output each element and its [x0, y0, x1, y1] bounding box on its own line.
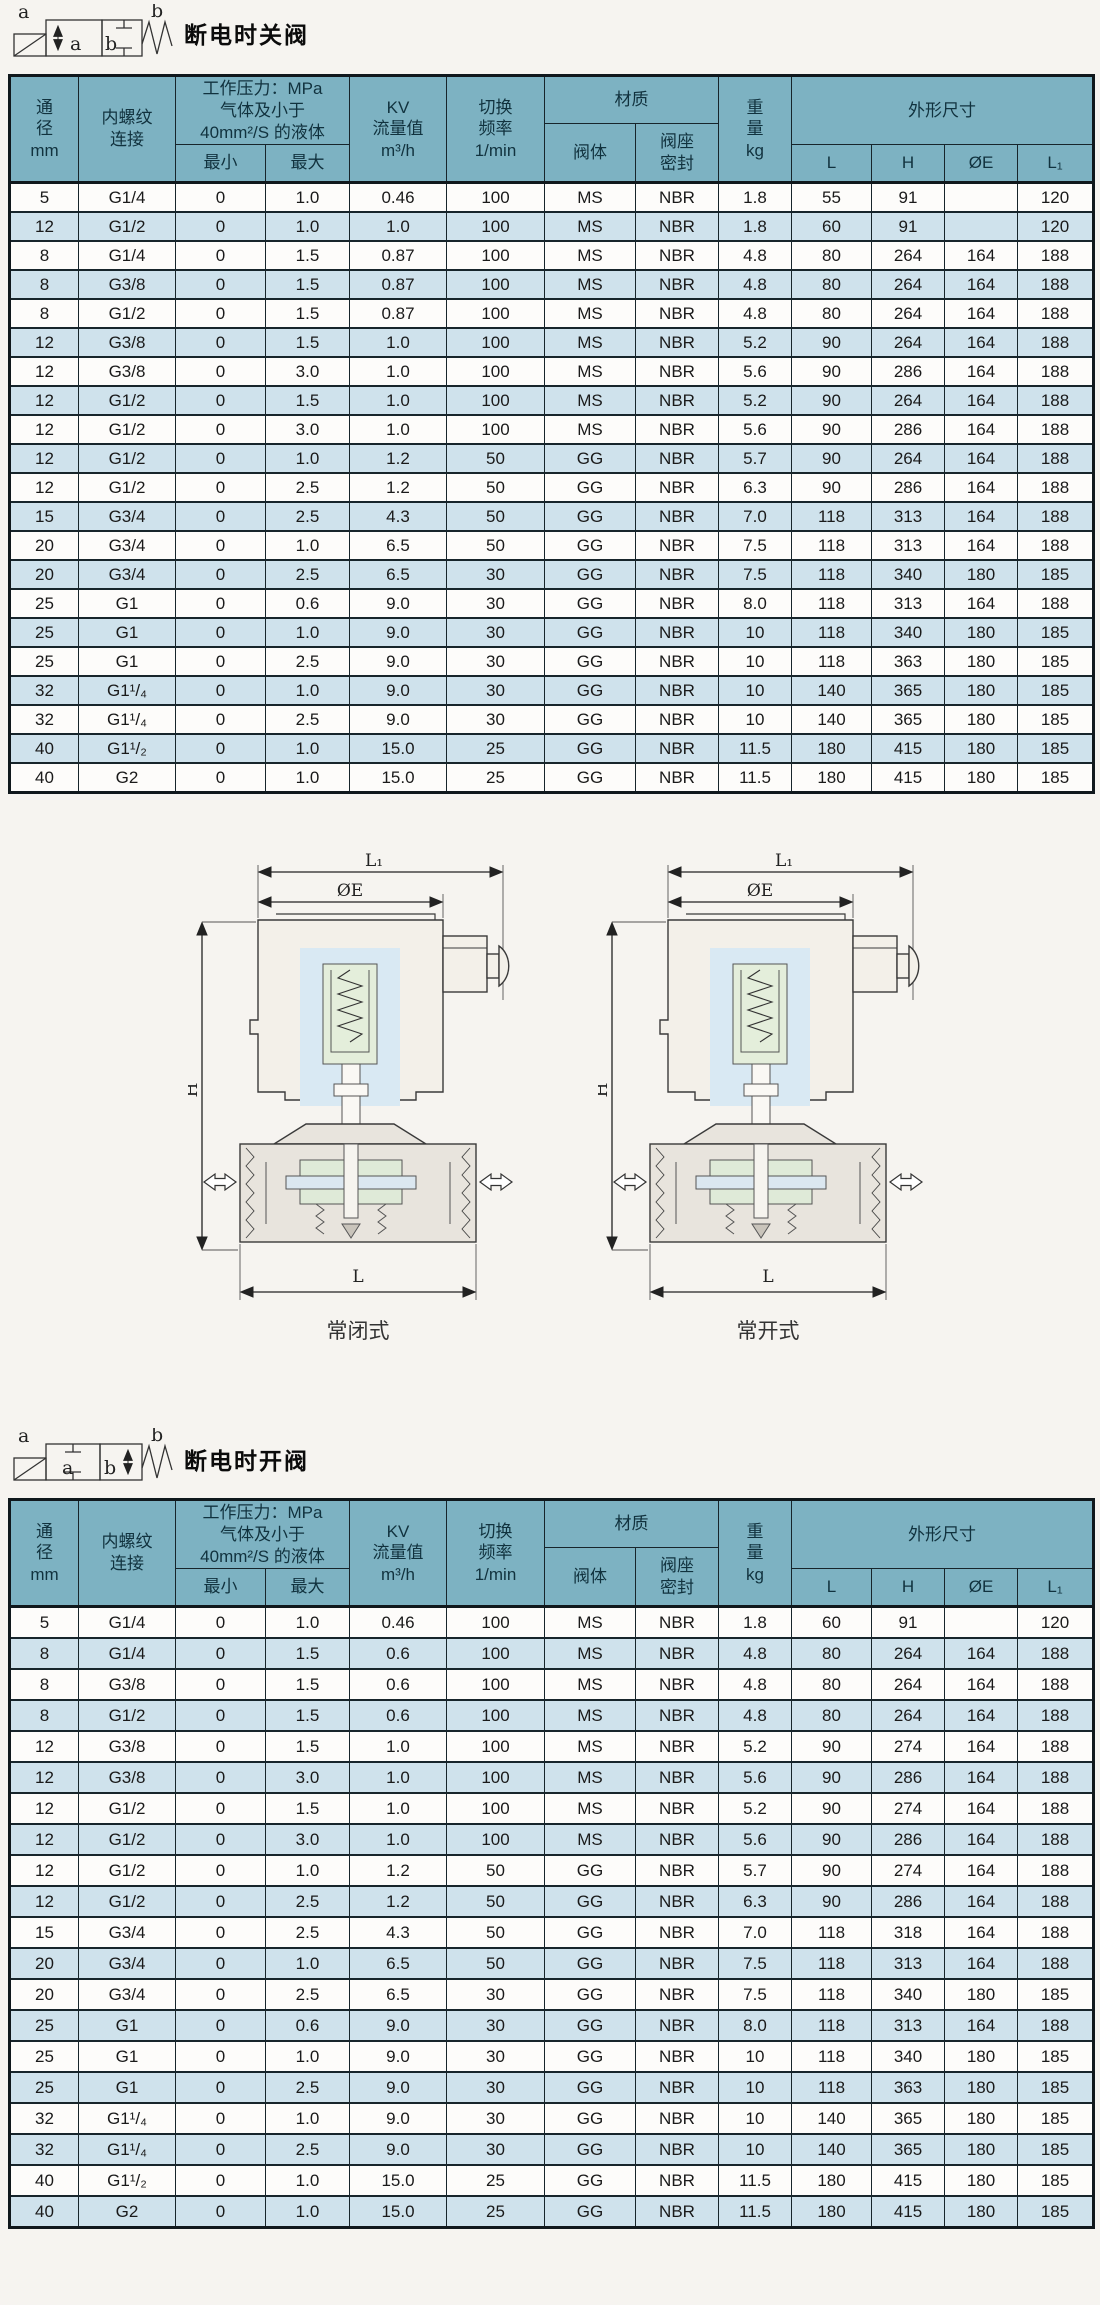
cell: NBR [636, 212, 719, 241]
cell: 11.5 [719, 763, 792, 793]
diagram-caption: 常开式 [737, 1320, 800, 1343]
cell: 188 [1018, 328, 1094, 357]
cell: 1.0 [266, 2103, 350, 2134]
cell: NBR [636, 2165, 719, 2196]
cell: 15.0 [350, 2165, 447, 2196]
cell: 264 [872, 328, 945, 357]
cell: 5.7 [719, 444, 792, 473]
cell: MS [545, 1731, 636, 1762]
table-row: 8G1/401.50.87100MSNBR4.880264164188 [10, 241, 1094, 270]
cell: 1.0 [266, 212, 350, 241]
cell: 20 [10, 1979, 79, 2010]
cell: 185 [1018, 734, 1094, 763]
cell: NBR [636, 1669, 719, 1700]
cell: 1.0 [266, 2165, 350, 2196]
cell: 1.0 [350, 1793, 447, 1824]
cell: 55 [792, 183, 872, 213]
table-row: 20G3/402.56.530GGNBR7.5118340180185 [10, 1979, 1094, 2010]
cell: 2.5 [266, 1886, 350, 1917]
cell: 164 [945, 589, 1018, 618]
table-row: 25G100.69.030GGNBR8.0118313164188 [10, 589, 1094, 618]
cell: GG [545, 705, 636, 734]
cell: 1.0 [266, 618, 350, 647]
cell: 6.5 [350, 560, 447, 589]
cell: G1/2 [79, 1700, 176, 1731]
cell: 0 [176, 734, 266, 763]
table-row: 8G1/201.50.87100MSNBR4.880264164188 [10, 299, 1094, 328]
cell: 12 [10, 212, 79, 241]
cell: 120 [1018, 212, 1094, 241]
cell: GG [545, 1917, 636, 1948]
col-header-min: 最小 [176, 145, 266, 183]
table-row: 15G3/402.54.350GGNBR7.0118318164188 [10, 1917, 1094, 1948]
cell: 0 [176, 212, 266, 241]
cell: 286 [872, 1762, 945, 1793]
cell: 100 [447, 183, 545, 213]
cell: 9.0 [350, 647, 447, 676]
cell: 90 [792, 328, 872, 357]
cell: GG [545, 2072, 636, 2103]
cell: G1 [79, 618, 176, 647]
cell: 100 [447, 1762, 545, 1793]
cell: G1/4 [79, 183, 176, 213]
cell: GG [545, 560, 636, 589]
col-header-L: L [792, 1569, 872, 1607]
table-header: 通径mm 内螺纹连接 工作压力：MPa气体及小于40mm²/S 的液体 KV流量… [10, 1500, 1094, 1607]
cell: 0.6 [350, 1669, 447, 1700]
cell: GG [545, 763, 636, 793]
cell: 15.0 [350, 2196, 447, 2228]
cell: 100 [447, 299, 545, 328]
cell: 415 [872, 2196, 945, 2228]
cell: 6.5 [350, 1979, 447, 2010]
cell: 0 [176, 1762, 266, 1793]
cell: 50 [447, 1917, 545, 1948]
cell: 100 [447, 1700, 545, 1731]
cell: 5 [10, 1607, 79, 1639]
cell: 0 [176, 1607, 266, 1639]
cell: 40 [10, 734, 79, 763]
cell: 185 [1018, 2196, 1094, 2228]
cell: NBR [636, 1917, 719, 1948]
cell: 188 [1018, 502, 1094, 531]
cell: 0 [176, 2103, 266, 2134]
cell: 12 [10, 386, 79, 415]
cell: G1/2 [79, 386, 176, 415]
cell: 188 [1018, 1886, 1094, 1917]
cell: 0 [176, 1700, 266, 1731]
cell: G3/8 [79, 328, 176, 357]
cell: GG [545, 1886, 636, 1917]
cell: MS [545, 415, 636, 444]
cell: 80 [792, 1669, 872, 1700]
cell: 12 [10, 328, 79, 357]
cell: 9.0 [350, 2041, 447, 2072]
cell: 264 [872, 241, 945, 270]
cell: 100 [447, 386, 545, 415]
cell: 25 [10, 589, 79, 618]
cell: 9.0 [350, 2134, 447, 2165]
cell: GG [545, 647, 636, 676]
cell: MS [545, 212, 636, 241]
cell: 264 [872, 299, 945, 328]
cell: G2 [79, 2196, 176, 2228]
cell: 12 [10, 473, 79, 502]
cell: 180 [945, 2134, 1018, 2165]
cell: GG [545, 676, 636, 705]
cell: 188 [1018, 386, 1094, 415]
cell: 0 [176, 2196, 266, 2228]
cell: 415 [872, 763, 945, 793]
cell: 180 [945, 676, 1018, 705]
cell: 7.5 [719, 1948, 792, 1979]
cell: 30 [447, 2103, 545, 2134]
cell: 90 [792, 357, 872, 386]
cell: 2.5 [266, 1917, 350, 1948]
cell: 20 [10, 1948, 79, 1979]
cell: G1/2 [79, 299, 176, 328]
cell: 5.6 [719, 1762, 792, 1793]
cell: GG [545, 2041, 636, 2072]
cell: 12 [10, 1731, 79, 1762]
cell: 0 [176, 647, 266, 676]
cell: MS [545, 357, 636, 386]
cell: 0 [176, 1979, 266, 2010]
cell: 90 [792, 386, 872, 415]
cell: 2.5 [266, 705, 350, 734]
cell: 164 [945, 386, 1018, 415]
cell: 118 [792, 2041, 872, 2072]
cell: NBR [636, 1700, 719, 1731]
cell: 80 [792, 299, 872, 328]
cell: 8 [10, 1638, 79, 1669]
col-header-pressure-group: 工作压力：MPa气体及小于40mm²/S 的液体 [176, 1500, 350, 1569]
cell: NBR [636, 270, 719, 299]
cell: 12 [10, 415, 79, 444]
cell: 0 [176, 560, 266, 589]
cell: MS [545, 1762, 636, 1793]
dim-label-L: L [762, 1267, 773, 1287]
cell: 6.3 [719, 473, 792, 502]
table-row: 32G1¹/₄01.09.030GGNBR10140365180185 [10, 2103, 1094, 2134]
cell: 0 [176, 705, 266, 734]
cell: G3/8 [79, 270, 176, 299]
cell: G1¹/₂ [79, 2165, 176, 2196]
cell: 140 [792, 2134, 872, 2165]
cell: NBR [636, 2010, 719, 2041]
table-row: 25G102.59.030GGNBR10118363180185 [10, 647, 1094, 676]
cell: 2.5 [266, 1979, 350, 2010]
col-header-max: 最大 [266, 1569, 350, 1607]
cell: 12 [10, 1762, 79, 1793]
table-row: 12G1/201.51.0100MSNBR5.290264164188 [10, 386, 1094, 415]
cell: 188 [1018, 415, 1094, 444]
cell: 180 [945, 2041, 1018, 2072]
cell: G1¹/₄ [79, 2103, 176, 2134]
cell: 140 [792, 705, 872, 734]
cell: 1.8 [719, 183, 792, 213]
cell: 7.0 [719, 502, 792, 531]
cell: 188 [1018, 1917, 1094, 1948]
cell: 313 [872, 589, 945, 618]
table-row: 8G1/401.50.6100MSNBR4.880264164188 [10, 1638, 1094, 1669]
cell: 164 [945, 1731, 1018, 1762]
table-row: 5G1/401.00.46100MSNBR1.85591120 [10, 183, 1094, 213]
cell: 164 [945, 1762, 1018, 1793]
symbol-position-a: a [70, 33, 81, 55]
cell: 8 [10, 299, 79, 328]
cell: 264 [872, 444, 945, 473]
cell: 185 [1018, 618, 1094, 647]
cell: 185 [1018, 2134, 1094, 2165]
cell: 0.87 [350, 270, 447, 299]
cell: 80 [792, 1638, 872, 1669]
cell: 164 [945, 299, 1018, 328]
table-row: 12G3/801.51.0100MSNBR5.290274164188 [10, 1731, 1094, 1762]
cell: 0.6 [266, 2010, 350, 2041]
cell: 274 [872, 1793, 945, 1824]
cell: NBR [636, 357, 719, 386]
cell: 25 [447, 734, 545, 763]
cell: 164 [945, 1700, 1018, 1731]
cell: NBR [636, 1979, 719, 2010]
cell: NBR [636, 589, 719, 618]
dim-label-L1: L₁ [365, 852, 383, 871]
cell: 1.0 [350, 1762, 447, 1793]
cell: GG [545, 2103, 636, 2134]
cell: 90 [792, 1886, 872, 1917]
cell: 30 [447, 560, 545, 589]
cell: 188 [1018, 1638, 1094, 1669]
cell: MS [545, 328, 636, 357]
cell: G1/2 [79, 473, 176, 502]
cell: G3/8 [79, 1731, 176, 1762]
cell: 9.0 [350, 676, 447, 705]
cell: 30 [447, 2010, 545, 2041]
cell: G3/8 [79, 357, 176, 386]
cell: 164 [945, 1669, 1018, 1700]
cell: MS [545, 299, 636, 328]
cell: 8 [10, 270, 79, 299]
cell: 264 [872, 1700, 945, 1731]
cell: NBR [636, 1824, 719, 1855]
cell: 188 [1018, 473, 1094, 502]
cell: 25 [10, 618, 79, 647]
cell: 4.8 [719, 1638, 792, 1669]
cell: G3/4 [79, 502, 176, 531]
cell: 7.5 [719, 560, 792, 589]
cell: 7.0 [719, 1917, 792, 1948]
col-header-thread: 内螺纹连接 [79, 1500, 176, 1607]
valve-cross-section-normally-open: L₁ ØE H L 常开式 [598, 852, 938, 1352]
cell: 164 [945, 415, 1018, 444]
cell: 50 [447, 1855, 545, 1886]
cell: 2.5 [266, 473, 350, 502]
col-header-material-group: 材质 [545, 76, 719, 124]
cell: 313 [872, 531, 945, 560]
cell: 318 [872, 1917, 945, 1948]
cell: 264 [872, 386, 945, 415]
cell: 30 [447, 2072, 545, 2103]
cell: 180 [792, 734, 872, 763]
cell: NBR [636, 734, 719, 763]
table-row: 32G1¹/₄01.09.030GGNBR10140365180185 [10, 676, 1094, 705]
cell: MS [545, 1638, 636, 1669]
col-header-dimensions-group: 外形尺寸 [792, 76, 1094, 145]
col-header-frequency: 切换频率1/min [447, 76, 545, 183]
cell: 4.8 [719, 1700, 792, 1731]
cell: 30 [447, 705, 545, 734]
cell: 0 [176, 183, 266, 213]
cell: 0 [176, 531, 266, 560]
diagram-caption: 常闭式 [327, 1320, 390, 1343]
cell: 0 [176, 415, 266, 444]
table-row: 40G1¹/₂01.015.025GGNBR11.5180415180185 [10, 734, 1094, 763]
dim-label-OE: ØE [747, 881, 773, 901]
cell: 120 [1018, 183, 1094, 213]
cell: 286 [872, 357, 945, 386]
cell: 32 [10, 2134, 79, 2165]
cell: 60 [792, 1607, 872, 1639]
cell: 9.0 [350, 705, 447, 734]
col-header-pressure-group: 工作压力：MPa气体及小于40mm²/S 的液体 [176, 76, 350, 145]
cell: 25 [10, 647, 79, 676]
cell: NBR [636, 531, 719, 560]
cell: 286 [872, 415, 945, 444]
col-header-kv: KV流量值m³/h [350, 1500, 447, 1607]
cell: 0 [176, 1824, 266, 1855]
cell: 6.3 [719, 1886, 792, 1917]
cell: MS [545, 183, 636, 213]
cell: 188 [1018, 1824, 1094, 1855]
cell: 1.5 [266, 1638, 350, 1669]
col-header-kv: KV流量值m³/h [350, 76, 447, 183]
cell: 180 [945, 2196, 1018, 2228]
cell: 4.3 [350, 1917, 447, 1948]
cell: NBR [636, 1607, 719, 1639]
table-row: 25G100.69.030GGNBR8.0118313164188 [10, 2010, 1094, 2041]
table-body: 5G1/401.00.46100MSNBR1.860911208G1/401.5… [10, 1607, 1094, 2228]
cell: 1.2 [350, 473, 447, 502]
cell: GG [545, 1855, 636, 1886]
col-header-weight: 重量kg [719, 1500, 792, 1607]
cell: 164 [945, 1886, 1018, 1917]
cell: 164 [945, 1793, 1018, 1824]
cell: 8.0 [719, 2010, 792, 2041]
cell: G1¹/₂ [79, 734, 176, 763]
cell: MS [545, 1824, 636, 1855]
cell: 40 [10, 763, 79, 793]
cell: 100 [447, 1638, 545, 1669]
cell: NBR [636, 2196, 719, 2228]
cell: 6.5 [350, 531, 447, 560]
cell: 313 [872, 2010, 945, 2041]
cell: 1.0 [350, 357, 447, 386]
cell: 180 [945, 618, 1018, 647]
cell: NBR [636, 183, 719, 213]
cell: G1/2 [79, 1886, 176, 1917]
cell: NBR [636, 647, 719, 676]
cell: 25 [447, 763, 545, 793]
cell: G1 [79, 2010, 176, 2041]
cell: 0 [176, 1793, 266, 1824]
cell: 10 [719, 2041, 792, 2072]
cell: 1.0 [266, 1607, 350, 1639]
valve-cross-section-normally-closed: L₁ ØE H L 常闭式 [188, 852, 528, 1352]
cell: G1 [79, 589, 176, 618]
cell: 20 [10, 560, 79, 589]
cell: MS [545, 1793, 636, 1824]
cell: GG [545, 473, 636, 502]
cell: 5.6 [719, 357, 792, 386]
cell: 164 [945, 473, 1018, 502]
cell: 5 [10, 183, 79, 213]
table-header: 通径mm 内螺纹连接 工作压力：MPa气体及小于40mm²/S 的液体 KV流量… [10, 76, 1094, 183]
cell: 5.2 [719, 1731, 792, 1762]
cell [945, 212, 1018, 241]
cell: 80 [792, 241, 872, 270]
cell: 50 [447, 1948, 545, 1979]
cell: 0 [176, 473, 266, 502]
cell: 0 [176, 1917, 266, 1948]
cell: MS [545, 1669, 636, 1700]
cell: 365 [872, 2134, 945, 2165]
cell: 90 [792, 415, 872, 444]
cell: 188 [1018, 1700, 1094, 1731]
cell: G1/2 [79, 444, 176, 473]
cell: NBR [636, 502, 719, 531]
cell: 415 [872, 2165, 945, 2196]
cell: 0 [176, 1638, 266, 1669]
cell: 30 [447, 647, 545, 676]
dim-label-L1: L₁ [775, 852, 793, 871]
cell: G1/2 [79, 1824, 176, 1855]
cell: 90 [792, 1855, 872, 1886]
cell: 30 [447, 2041, 545, 2072]
col-header-dn: 通径mm [10, 76, 79, 183]
cell: 1.0 [266, 2041, 350, 2072]
cell: 0 [176, 386, 266, 415]
cell: 180 [945, 1979, 1018, 2010]
col-header-valve-body: 阀体 [545, 124, 636, 183]
col-header-dn: 通径mm [10, 1500, 79, 1607]
cell: GG [545, 2134, 636, 2165]
cell: NBR [636, 705, 719, 734]
cell: 0 [176, 2134, 266, 2165]
cell: GG [545, 531, 636, 560]
cell: 90 [792, 1793, 872, 1824]
cell: 10 [719, 647, 792, 676]
table-row: 12G3/803.01.0100MSNBR5.690286164188 [10, 357, 1094, 386]
cell: 188 [1018, 531, 1094, 560]
cell: 313 [872, 502, 945, 531]
cell: GG [545, 589, 636, 618]
cell: GG [545, 2165, 636, 2196]
cell: 0.46 [350, 1607, 447, 1639]
cell: MS [545, 1607, 636, 1639]
cell: 90 [792, 1762, 872, 1793]
cell: 0.87 [350, 241, 447, 270]
cell: 1.0 [266, 734, 350, 763]
cell: G1/2 [79, 1855, 176, 1886]
cell: 140 [792, 2103, 872, 2134]
cell: 2.5 [266, 502, 350, 531]
cell: 3.0 [266, 357, 350, 386]
cell: G1¹/₄ [79, 2134, 176, 2165]
cell: 0.6 [350, 1700, 447, 1731]
cell: 1.2 [350, 444, 447, 473]
table-row: 12G1/203.01.0100MSNBR5.690286164188 [10, 1824, 1094, 1855]
